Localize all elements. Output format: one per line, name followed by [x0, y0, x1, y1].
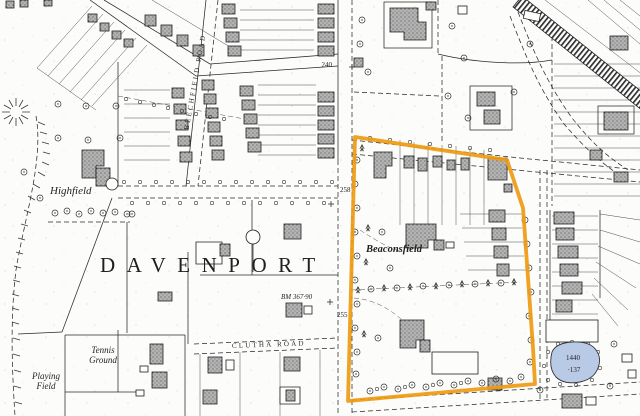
map-viewport: 1440 ·137 DAVENPORT Highfield Beaconsfie… — [0, 0, 640, 416]
parcel-number: 1440 — [566, 354, 581, 362]
label-highfield: Highfield — [49, 185, 92, 197]
map-canvas[interactable]: 1440 ·137 DAVENPORT Highfield Beaconsfie… — [0, 0, 640, 416]
parcel-area: ·137 — [568, 366, 581, 374]
label-tennis-2: Ground — [89, 355, 117, 365]
pond: 1440 ·137 — [551, 342, 600, 383]
label-tennis-1: Tennis — [91, 345, 115, 355]
spot-height-258: 258 — [340, 186, 351, 194]
label-beaconsfield: Beaconsfield — [365, 244, 423, 255]
label-playing-1: Playing — [31, 371, 60, 381]
spot-height-240: 240 — [322, 61, 333, 69]
label-davenport: DAVENPORT — [100, 253, 327, 277]
label-playing-2: Field — [36, 381, 56, 391]
benchmark-label: BM 367·90 — [281, 293, 313, 301]
spot-height-255: 255 — [337, 311, 348, 319]
